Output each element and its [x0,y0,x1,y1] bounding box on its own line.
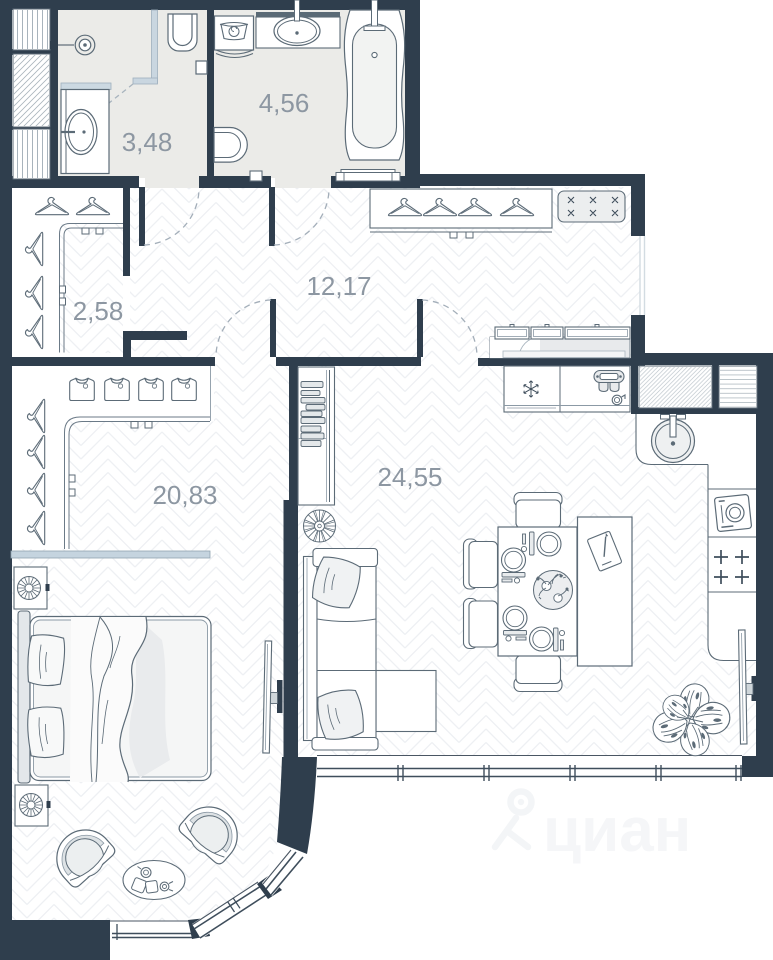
svg-text:12,17: 12,17 [306,271,371,301]
svg-text:2,58: 2,58 [73,296,124,326]
svg-text:20,83: 20,83 [152,480,217,510]
svg-text:циан: циан [543,796,691,865]
svg-text:4,56: 4,56 [259,88,310,118]
svg-text:3,48: 3,48 [122,127,173,157]
svg-text:24,55: 24,55 [377,462,442,492]
